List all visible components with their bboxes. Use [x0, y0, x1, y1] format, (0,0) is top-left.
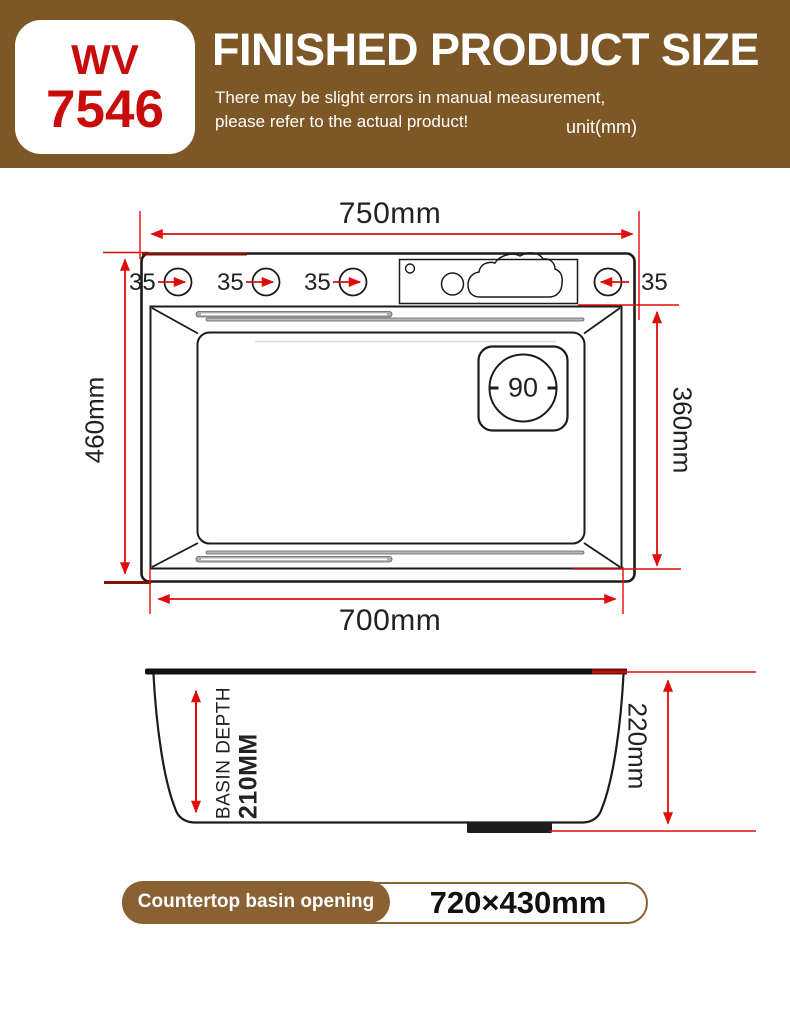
- technical-drawing-canvas: [0, 0, 790, 1010]
- bottom-groove-long: [206, 551, 584, 554]
- drain-dash-right: [548, 387, 558, 390]
- basin-depth-label: BASIN DEPTH 210MM: [213, 687, 262, 819]
- dim-label-side-height: 220mm: [622, 703, 653, 790]
- sink-rim: [145, 669, 627, 675]
- sink-top-view-drawing: [103, 211, 681, 614]
- basin-depth-label-line1: BASIN DEPTH: [213, 687, 234, 819]
- dim-label-hole-2: 35: [217, 269, 244, 297]
- bevel-bottom-right: [584, 543, 620, 567]
- basin-depth-label-line2: 210MM: [235, 687, 263, 819]
- panel-pin-hole: [406, 264, 415, 273]
- drain-fitting: [467, 822, 552, 834]
- bevel-bottom-left: [152, 543, 198, 567]
- dim-label-hole-4: 35: [641, 269, 668, 297]
- dim-label-hole-1: 35: [129, 269, 156, 297]
- dim-label-basin-height: 360mm: [667, 387, 698, 474]
- panel-knob-hole: [442, 273, 464, 295]
- dim-label-hole-3: 35: [304, 269, 331, 297]
- badge-label: Countertop basin opening: [122, 881, 390, 923]
- dim-label-bottom-width: 700mm: [290, 604, 490, 638]
- bevel-top-right: [584, 308, 620, 334]
- finished-product-size-infographic: WV 7546 FINISHED PRODUCT SIZE There may …: [0, 0, 790, 1010]
- drain-dash-left: [489, 387, 499, 390]
- countertop-opening-badge: Countertop basin opening 720×430mm: [122, 882, 648, 924]
- sink-outer-outline: [142, 254, 635, 582]
- dim-label-top-width: 750mm: [290, 197, 490, 231]
- dim-label-total-height: 460mm: [80, 377, 111, 464]
- top-groove-highlight: [201, 313, 387, 315]
- bowl-bottom-outline: [198, 333, 585, 544]
- dim-label-drain-diameter: 90: [508, 373, 538, 404]
- badge-value: 720×430mm: [390, 885, 646, 921]
- top-groove-long: [206, 318, 584, 321]
- bottom-groove-highlight: [201, 558, 387, 560]
- bevel-top-left: [152, 308, 198, 334]
